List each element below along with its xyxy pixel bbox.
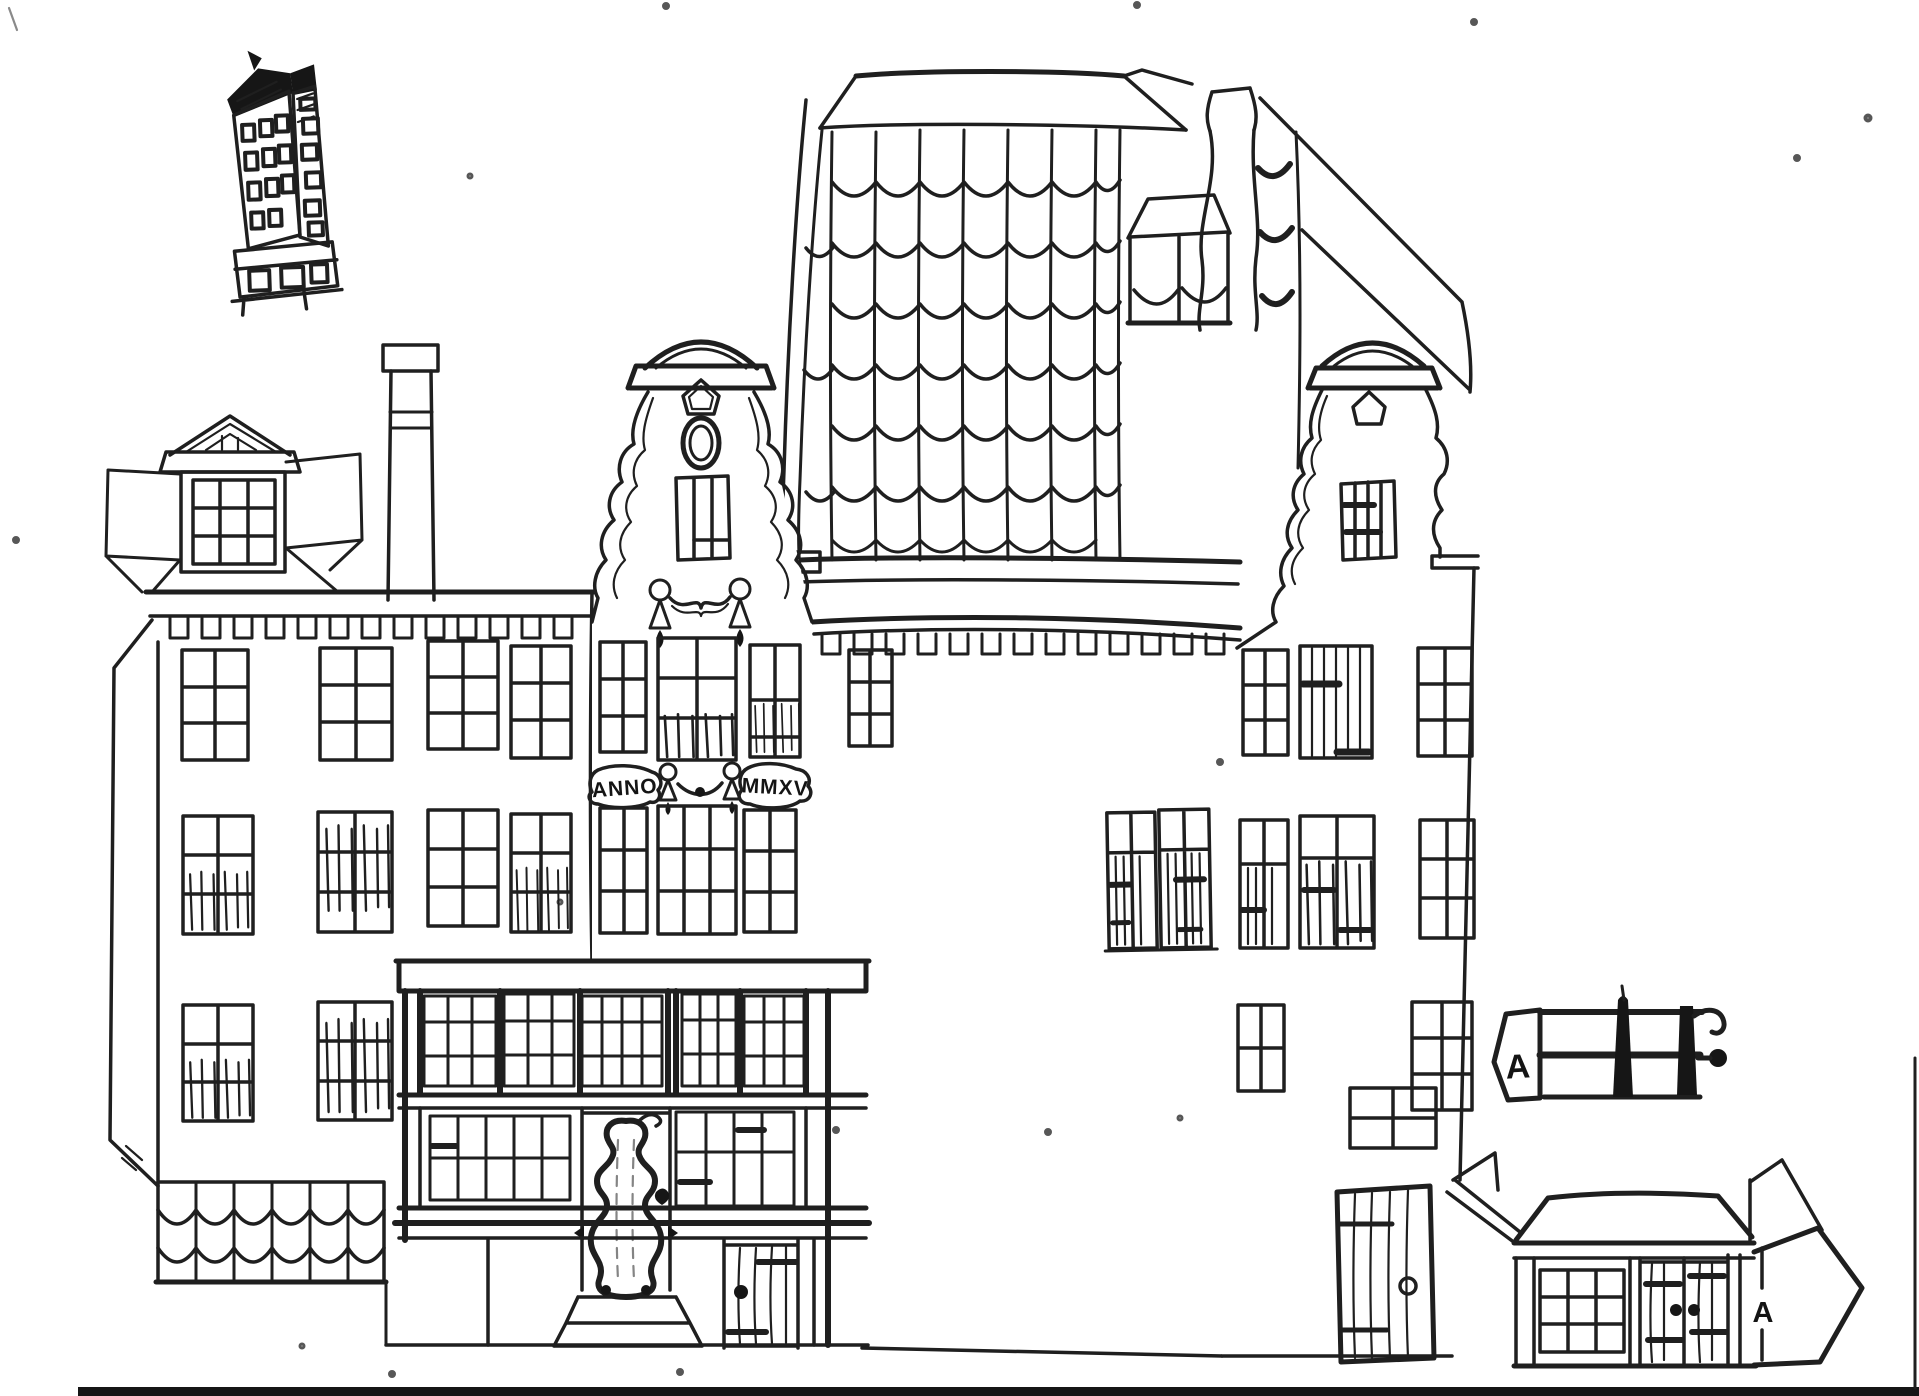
front-annex [386, 961, 869, 1348]
roof-eaves [800, 558, 1240, 562]
pediment-brim [160, 452, 300, 472]
door-knob [1670, 1304, 1682, 1316]
roof-eaves-band [802, 580, 1238, 584]
wall-window-pair [1103, 809, 1217, 951]
scan-bottom-bar [78, 1387, 1919, 1396]
year-text: MMXV [741, 774, 809, 800]
central-house: ANNO MMXV [589, 342, 812, 963]
window [183, 1005, 253, 1121]
scalloped-canopy [156, 1182, 386, 1345]
hoisting-beam-part: A [1494, 986, 1727, 1100]
gable-brim [1308, 368, 1440, 388]
wall-cornice-line [814, 629, 1240, 640]
window [318, 812, 392, 932]
chimney-cap [383, 345, 438, 371]
chimney-cap [1207, 88, 1256, 131]
window [183, 816, 253, 934]
cornice-dentils [170, 618, 572, 638]
roof-dormer-pediment [106, 416, 362, 592]
garland-knot [695, 787, 705, 797]
annex-fill [1516, 1196, 1754, 1366]
canopy-dividers [196, 1182, 348, 1282]
door-knob [1688, 1304, 1700, 1316]
window [1107, 812, 1157, 949]
beam-hook-curl [1694, 1010, 1724, 1033]
roof-chimney [1199, 88, 1300, 468]
chimney-right [1253, 130, 1258, 330]
chimney-band [390, 412, 432, 428]
window [511, 814, 571, 932]
beam-post [1677, 1006, 1697, 1095]
annex-fill [399, 963, 866, 1345]
cartouche-dot [601, 1285, 611, 1295]
door-knob [734, 1285, 748, 1299]
ground-line [862, 1348, 1222, 1356]
annex-building: A [1447, 1153, 1862, 1366]
left-edge-flap [110, 620, 158, 1186]
gable-crown-inner [1334, 351, 1412, 366]
window [428, 810, 498, 926]
roof-dormer-frame [1130, 232, 1228, 322]
sketch-finial [247, 50, 262, 70]
dormer-left-flap [106, 470, 180, 592]
roof-ridge [856, 72, 1124, 77]
drawing-canvas: ANNO MMXV [0, 0, 1919, 1396]
wall-cornice [812, 617, 1240, 628]
part-label-a-beam: A [1505, 1047, 1532, 1086]
roof-dormer [1128, 195, 1230, 323]
anno-text: ANNO [591, 775, 658, 803]
sketch-base [232, 290, 343, 316]
window-planks [1116, 856, 1142, 944]
dormer-right-flap [286, 454, 362, 592]
scan-left-margin [0, 0, 8, 1396]
scan-speck [9, 8, 17, 30]
window [193, 480, 275, 564]
rear-wall [812, 617, 1240, 1356]
reference-sketch [223, 48, 342, 316]
roof-ridge-slopes [820, 76, 1186, 130]
part-label-a-annex: A [1753, 1297, 1774, 1329]
roof-upper-edge [820, 124, 1186, 130]
window [320, 648, 392, 760]
sketch-windows [242, 115, 296, 229]
chimney-body [388, 371, 434, 600]
window [849, 650, 892, 746]
window [182, 650, 248, 760]
window [511, 646, 571, 758]
window [428, 641, 498, 749]
roof-ridge-edge [1124, 70, 1192, 84]
roof-right-edge [1296, 132, 1300, 468]
scanned-canal-house-drawing: ANNO MMXV [0, 0, 1919, 1396]
right-house [1222, 343, 1478, 1362]
chimney-tile-arcs [1258, 164, 1292, 304]
cartouche-dot [641, 1285, 651, 1295]
roof-right-flap [1260, 98, 1471, 392]
sketch-body [233, 91, 300, 249]
window-sill [1105, 949, 1217, 951]
beam-post-top [1622, 986, 1624, 1000]
dormer-casing [181, 472, 285, 572]
chimney [383, 345, 438, 600]
roof-left-flap [783, 100, 807, 566]
scan-specks [14, 3, 1871, 1376]
